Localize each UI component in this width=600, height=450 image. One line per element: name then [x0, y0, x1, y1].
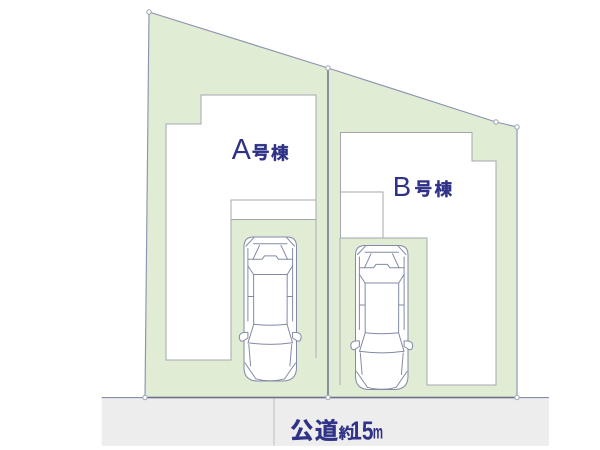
svg-text:15: 15 [350, 417, 373, 446]
svg-text:B: B [393, 171, 411, 202]
svg-text:A: A [232, 134, 252, 166]
svg-text:m: m [373, 423, 383, 444]
